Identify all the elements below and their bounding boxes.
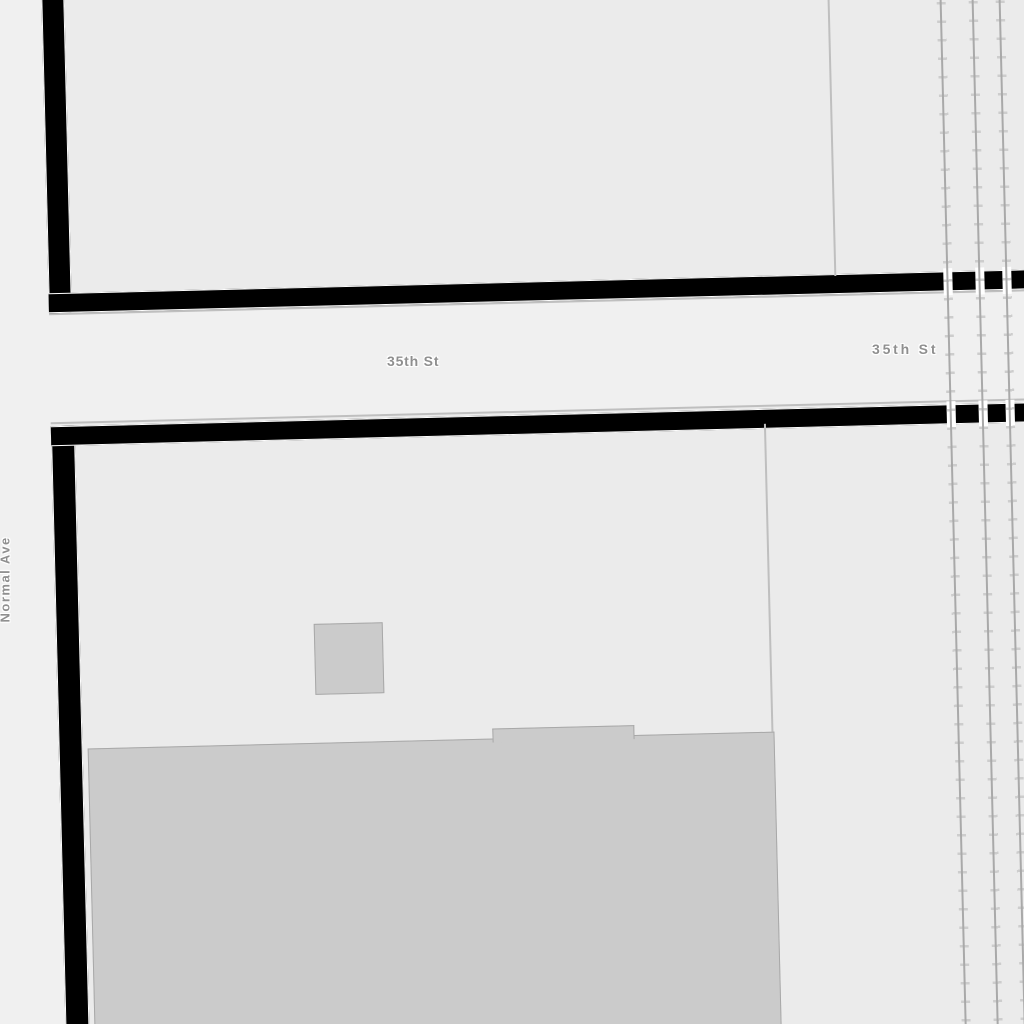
map-canvas[interactable] — [0, 0, 1024, 1024]
building-large-footprint — [88, 732, 786, 1024]
map-viewport[interactable]: 35th St 35th St Normal Ave — [0, 0, 1024, 1024]
city-block-north — [40, 0, 1024, 313]
building-small-square — [314, 622, 385, 695]
